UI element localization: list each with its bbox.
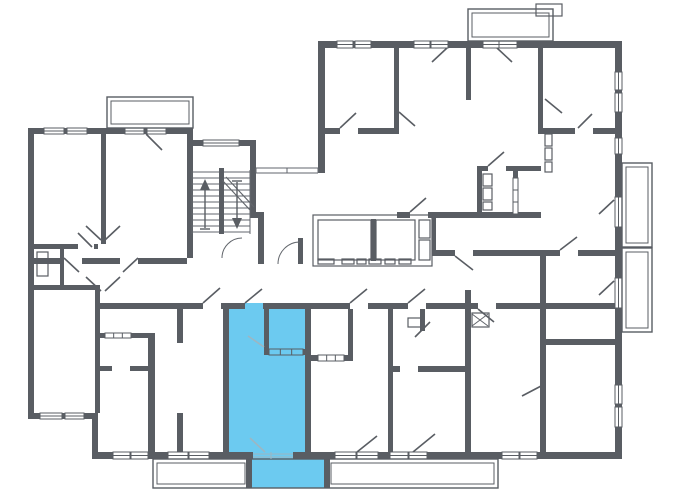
selected-unit-opening[interactable] <box>253 452 293 459</box>
stairwell <box>192 168 254 234</box>
selected-unit[interactable] <box>227 303 327 488</box>
floor-plan-page <box>0 0 680 500</box>
floor-plan <box>0 0 680 500</box>
elevator-block <box>37 4 562 327</box>
